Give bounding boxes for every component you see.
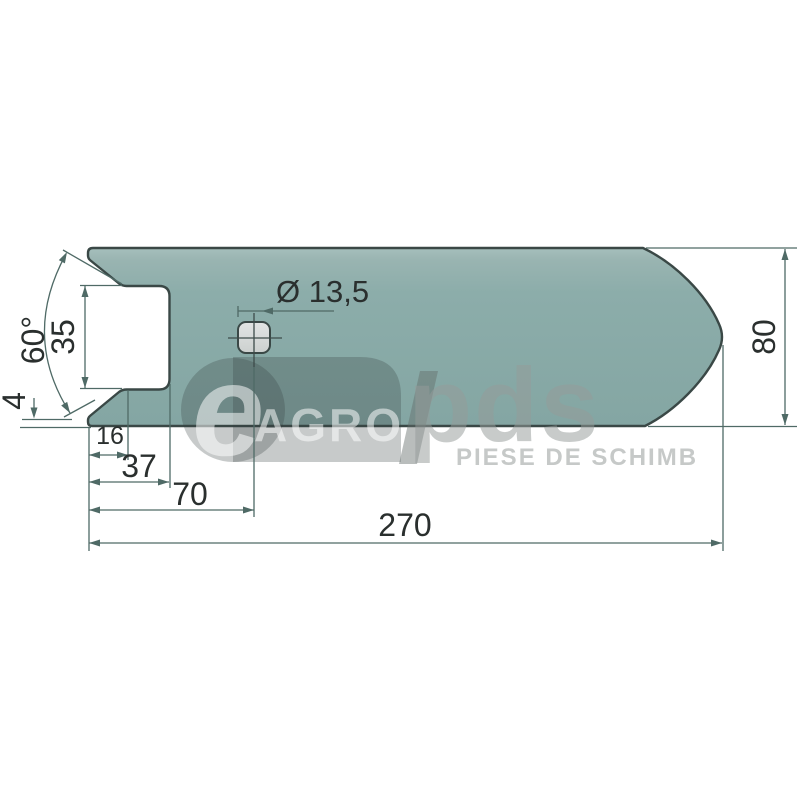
dim-label-16: 16 [96, 422, 124, 450]
arrow-80-top [782, 249, 789, 260]
technical-drawing-page: e AGRO pds PIESE DE SCHIMB Ø 13,5 60° 35 [0, 0, 800, 800]
dim-label-37: 37 [121, 448, 157, 484]
arrow-35-top [82, 286, 89, 297]
dim-label-4: 4 [0, 392, 32, 410]
dim-label-70: 70 [172, 476, 208, 512]
arrow-270-right [711, 540, 722, 547]
dim-label-80: 80 [746, 319, 782, 355]
dim-label-35: 35 [45, 319, 81, 355]
dim-slot-height: 35 [45, 286, 122, 389]
angle-arrow-bottom [61, 402, 70, 413]
technical-drawing: e AGRO pds PIESE DE SCHIMB Ø 13,5 60° 35 [0, 0, 800, 800]
arrow-70-right [243, 507, 254, 514]
angle-arrow-top [59, 252, 67, 263]
watermark-tagline: PIESE DE SCHIMB [456, 444, 698, 471]
arrow-270-left [89, 540, 100, 547]
arrow-37-left [89, 479, 100, 486]
arrow-70-left [89, 507, 100, 514]
watermark-agro: AGRO [254, 399, 404, 451]
dim-label-hole-diameter: Ø 13,5 [276, 274, 369, 309]
arrow-80-bottom [782, 414, 789, 425]
arrow-37-right [158, 479, 169, 486]
arrow-16-left [89, 452, 100, 459]
arrow-35-bottom [82, 377, 89, 388]
dim-label-270: 270 [378, 507, 431, 543]
